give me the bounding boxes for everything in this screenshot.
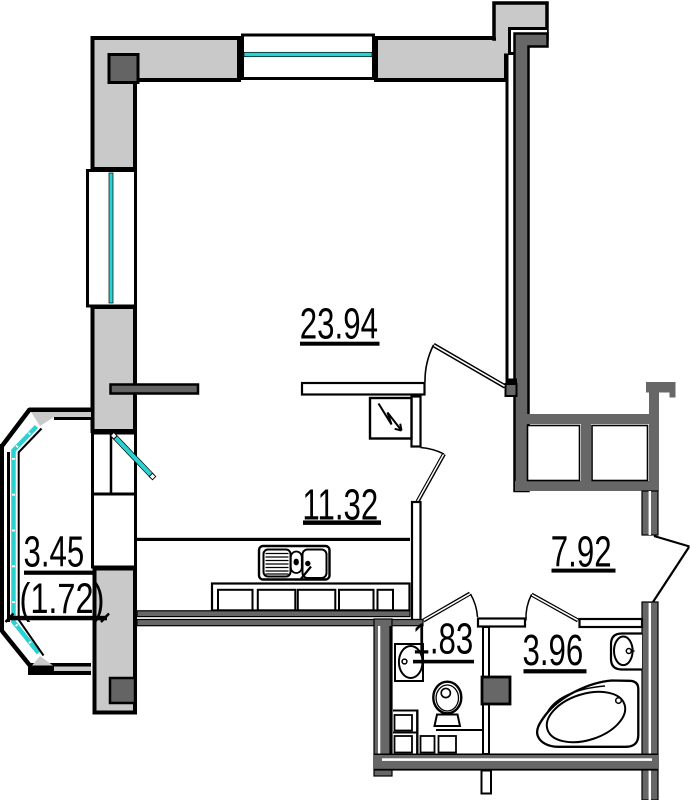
svg-text:3.45: 3.45 (24, 527, 85, 577)
svg-text:3.96: 3.96 (523, 626, 584, 676)
svg-text:23.94: 23.94 (300, 299, 378, 349)
svg-text:1.83: 1.83 (413, 614, 474, 664)
